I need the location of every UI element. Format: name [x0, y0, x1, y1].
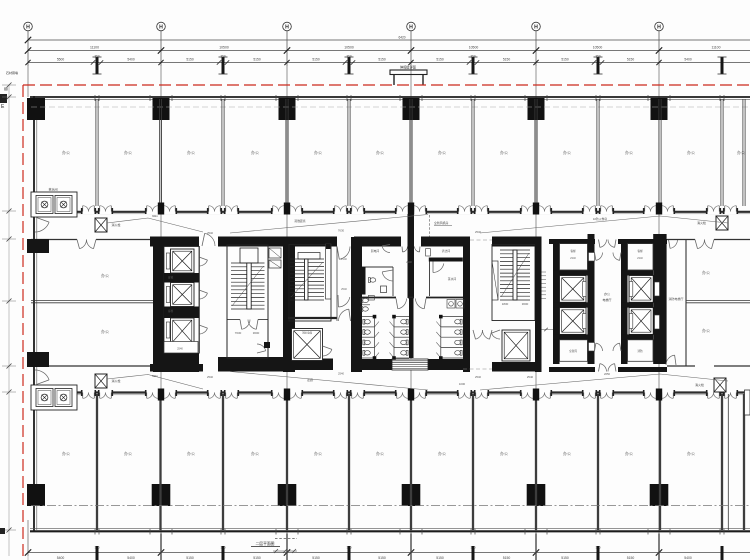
svg-text:2140: 2140 [341, 257, 347, 261]
svg-text:弱电间: 弱电间 [371, 249, 380, 253]
svg-text:消火栓: 消火栓 [695, 382, 704, 387]
svg-text:5500: 5500 [57, 58, 65, 62]
svg-text:2540: 2540 [207, 231, 213, 235]
svg-text:办公: 办公 [737, 149, 745, 155]
svg-text:茶水间: 茶水间 [448, 277, 457, 281]
svg-text:H: H [409, 25, 413, 31]
svg-text:10500: 10500 [219, 46, 229, 50]
svg-text:办公: 办公 [500, 149, 508, 155]
svg-text:办公: 办公 [702, 269, 710, 275]
svg-text:办公: 办公 [124, 450, 132, 456]
svg-text:办公: 办公 [62, 149, 70, 155]
svg-text:二层平面图: 二层平面图 [256, 541, 275, 546]
svg-text:H: H [534, 25, 538, 31]
svg-text:7630: 7630 [338, 229, 345, 233]
svg-text:办公: 办公 [500, 450, 508, 456]
svg-text:办公: 办公 [251, 450, 259, 456]
svg-text:5400: 5400 [127, 58, 135, 62]
svg-text:石材幕墙: 石材幕墙 [6, 70, 18, 75]
svg-text:5400: 5400 [57, 556, 65, 560]
svg-text:办公: 办公 [187, 450, 195, 456]
svg-text:2540: 2540 [177, 347, 183, 351]
svg-text:办公: 办公 [187, 149, 195, 155]
svg-text:5150: 5150 [378, 556, 386, 560]
svg-text:10500: 10500 [593, 46, 603, 50]
svg-text:办公: 办公 [101, 328, 109, 334]
svg-text:全新风机房: 全新风机房 [434, 220, 449, 225]
svg-text:3600: 3600 [253, 331, 260, 335]
svg-text:茶水间: 茶水间 [48, 187, 57, 192]
svg-text:2540: 2540 [475, 230, 481, 234]
svg-text:消防: 消防 [637, 349, 643, 353]
svg-text:5150: 5150 [561, 58, 569, 62]
svg-text:H: H [657, 25, 661, 31]
svg-text:7630: 7630 [235, 331, 242, 335]
svg-text:消火栓: 消火栓 [111, 378, 120, 383]
svg-text:2340: 2340 [637, 256, 643, 260]
svg-text:疏散距离: 疏散距离 [294, 219, 305, 223]
svg-text:办公: 办公 [438, 149, 446, 155]
svg-text:办公: 办公 [687, 149, 695, 155]
svg-text:5150: 5150 [253, 58, 261, 62]
svg-text:2540: 2540 [341, 287, 347, 291]
svg-text:5400: 5400 [684, 58, 692, 62]
svg-text:2540: 2540 [338, 372, 344, 376]
svg-text:1830: 1830 [502, 302, 509, 306]
svg-text:6420: 6420 [398, 36, 405, 40]
svg-text:1000: 1000 [459, 382, 466, 386]
svg-text:办公: 办公 [251, 149, 259, 155]
svg-text:11100: 11100 [90, 46, 99, 50]
svg-text:全新风: 全新风 [569, 349, 577, 353]
svg-text:3600: 3600 [522, 302, 529, 306]
svg-text:2650: 2650 [604, 372, 610, 376]
svg-text:伸缩缝详图: 伸缩缝详图 [400, 65, 416, 70]
svg-text:5150: 5150 [186, 58, 194, 62]
svg-text:客梯: 客梯 [168, 276, 174, 280]
svg-text:5150: 5150 [312, 58, 320, 62]
svg-text:办公: 办公 [314, 149, 322, 155]
svg-text:5150: 5150 [436, 556, 444, 560]
svg-text:5150: 5150 [312, 556, 320, 560]
svg-text:办公: 办公 [376, 450, 384, 456]
svg-text:H: H [159, 25, 163, 31]
svg-text:消火栓: 消火栓 [111, 222, 120, 227]
svg-text:1#防火卷帘: 1#防火卷帘 [593, 217, 608, 221]
svg-text:5150: 5150 [378, 58, 386, 62]
svg-text:办公: 办公 [124, 149, 132, 155]
svg-text:消防电梯: 消防电梯 [302, 331, 313, 335]
svg-text:5400: 5400 [127, 556, 135, 560]
svg-text:5150: 5150 [627, 58, 635, 62]
svg-text:90m: 90m [152, 214, 158, 218]
svg-text:办公: 办公 [62, 450, 70, 456]
svg-text:5150: 5150 [561, 556, 569, 560]
svg-text:办公: 办公 [314, 450, 322, 456]
svg-text:办公: 办公 [438, 450, 446, 456]
svg-text:客梯: 客梯 [168, 309, 174, 313]
svg-text:2540: 2540 [475, 375, 481, 379]
svg-text:办公: 办公 [702, 327, 710, 333]
svg-text:办公: 办公 [687, 450, 695, 456]
svg-text:H: H [26, 25, 30, 31]
svg-text:5150: 5150 [503, 556, 511, 560]
svg-text:5150: 5150 [627, 556, 635, 560]
svg-text:办公: 办公 [604, 291, 610, 296]
svg-text:走廊: 走廊 [307, 377, 313, 382]
svg-text:2140: 2140 [406, 260, 412, 264]
svg-text:H: H [285, 25, 289, 31]
svg-text:5400: 5400 [684, 556, 692, 560]
svg-text:5150: 5150 [503, 58, 511, 62]
svg-text:办公: 办公 [101, 272, 109, 278]
svg-text:电梯厅: 电梯厅 [602, 297, 611, 302]
svg-text:办公: 办公 [625, 450, 633, 456]
svg-text:2540: 2540 [207, 375, 213, 379]
svg-text:90m: 90m [152, 374, 158, 378]
svg-text:10500: 10500 [469, 46, 479, 50]
svg-text:清洁间: 清洁间 [442, 249, 451, 253]
svg-text:办公: 办公 [563, 149, 571, 155]
svg-text:11100: 11100 [712, 46, 721, 50]
svg-text:5150: 5150 [253, 556, 261, 560]
svg-text:消防电梯厅: 消防电梯厅 [668, 296, 683, 301]
svg-text:10500: 10500 [344, 46, 354, 50]
svg-text:办公: 办公 [625, 149, 633, 155]
svg-text:办公: 办公 [563, 450, 571, 456]
svg-text:客梯: 客梯 [570, 249, 576, 253]
svg-text:5150: 5150 [186, 556, 194, 560]
svg-text:办公: 办公 [376, 149, 384, 155]
svg-text:5150: 5150 [436, 58, 444, 62]
svg-text:客梯: 客梯 [637, 249, 643, 253]
svg-text:2540: 2540 [527, 375, 534, 379]
svg-text:2340: 2340 [570, 256, 576, 260]
